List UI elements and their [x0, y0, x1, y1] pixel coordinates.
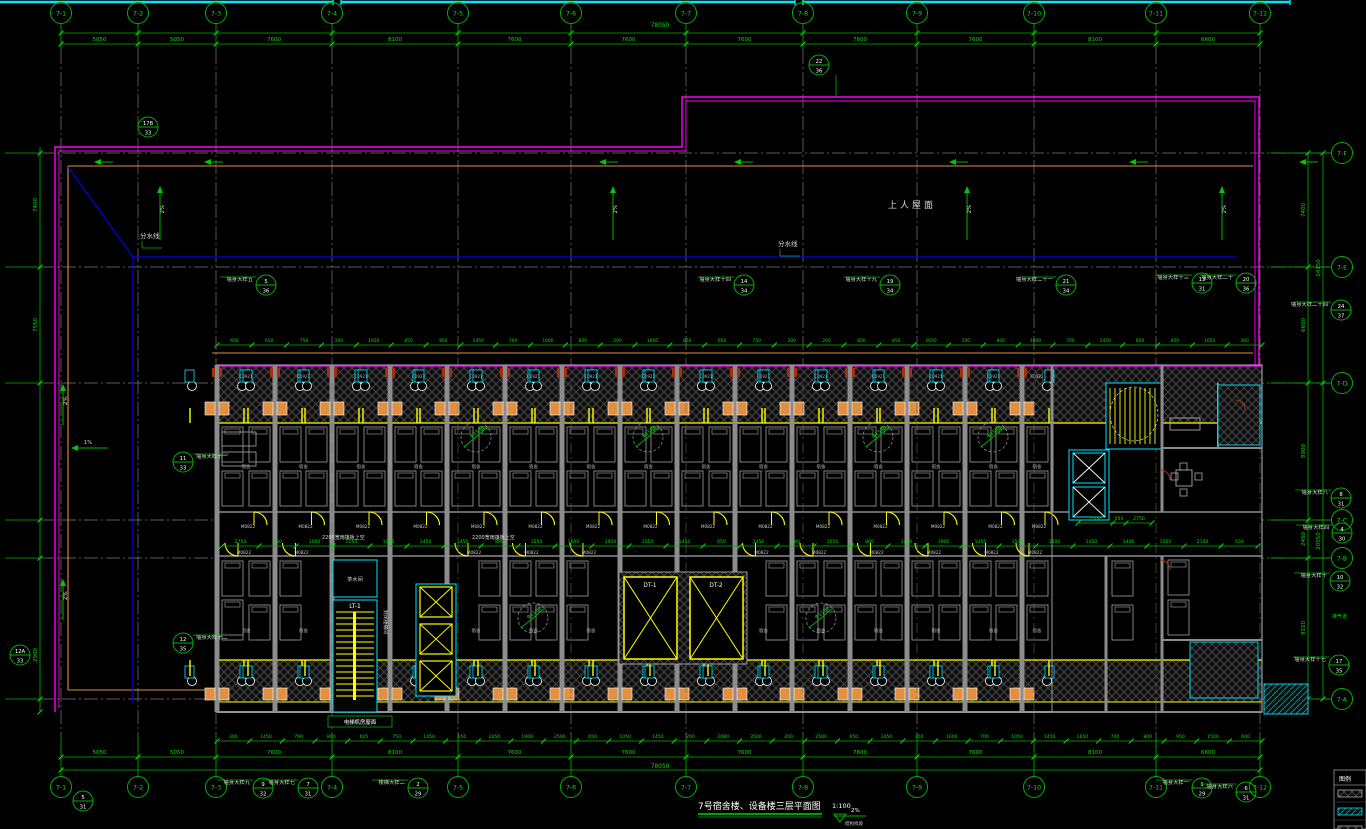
grid-bubble-label: 7-7	[681, 10, 691, 17]
dim-value: 7600	[508, 750, 522, 756]
module-wall	[963, 365, 968, 712]
module-wall	[388, 365, 393, 712]
shaft-box	[205, 402, 215, 415]
room-label: 宿舍	[529, 463, 538, 470]
door-tag: M0822	[758, 524, 773, 529]
room-label: 宿舍	[817, 463, 826, 470]
vent-riser	[730, 368, 733, 377]
shaft-box	[794, 402, 804, 415]
module-wall	[905, 365, 910, 712]
detail-label: 墙身大样二十四	[1291, 300, 1328, 308]
module-wall	[560, 365, 565, 712]
shaft-box	[277, 688, 287, 700]
dim-value: 7600	[969, 37, 983, 43]
grid-bubble-label: 7-A	[1337, 696, 1348, 703]
grid-bubble-label: 7-10	[1027, 784, 1041, 791]
shaft-box	[737, 688, 747, 700]
slope-label: 2%	[160, 205, 166, 214]
door-tag: M0822	[528, 524, 543, 529]
corridor-note: 2200宽雨篷板上空	[472, 534, 515, 541]
shaft-box	[392, 402, 402, 415]
door-tag: M0822	[413, 524, 428, 529]
grid-bubble-label: 7-5	[453, 10, 463, 17]
dim-value: 2500	[815, 734, 827, 740]
vent-riser	[622, 368, 625, 377]
shaft-box	[665, 688, 675, 700]
dim-value: 700	[1066, 338, 1075, 344]
vent-riser	[1024, 368, 1027, 377]
dim-value: 1050	[642, 539, 654, 545]
vent-riser	[507, 368, 510, 377]
shaft-box	[1024, 402, 1034, 415]
detail-number: 7	[306, 782, 309, 788]
detail-sheet: 34	[1063, 289, 1070, 295]
vent-riser	[334, 368, 337, 377]
detail-label: 墙身大样十	[1301, 571, 1328, 579]
door-tag: M0822	[524, 550, 539, 555]
stair-room-label: 封闭楼梯间	[382, 610, 389, 634]
dim-value: 7600	[622, 750, 636, 756]
dim-value: 1000	[309, 539, 321, 545]
basin	[821, 382, 830, 391]
dim-value: 2100	[1089, 516, 1101, 522]
room-label: 宿舍	[759, 463, 768, 470]
roof-label: 上人屋面	[888, 200, 936, 211]
dim-value: 605	[360, 734, 369, 740]
dim-value: 7600	[853, 37, 867, 43]
detail-label: 墙身大样八	[1302, 488, 1329, 496]
drawing-title: 7号宿舍楼、设备楼三层平面图	[698, 800, 821, 812]
detail-label: 墙身大样二十一	[1016, 275, 1054, 283]
slope-percent: 2%	[851, 808, 860, 814]
vent-riser	[909, 368, 912, 377]
shaft-box	[378, 402, 388, 415]
window-tag: C0921	[642, 374, 655, 379]
dim-value: 650	[717, 539, 726, 545]
door-tag: M0822	[298, 524, 313, 529]
dim-value: 1450	[260, 734, 272, 740]
detail-number: 11	[180, 456, 187, 462]
basin	[418, 382, 427, 391]
grid-bubble-label: 7-4	[327, 10, 337, 17]
dim-value: 2750	[1133, 516, 1145, 522]
shaft-box	[277, 402, 287, 415]
dim-value: 2050	[489, 734, 501, 740]
detail-label: 墙身大样七	[269, 778, 296, 786]
grid-bubble-label: 7-E	[1337, 264, 1347, 271]
grid-bubble-label: 7-8	[798, 10, 808, 17]
shaft-box	[838, 688, 848, 700]
room-label: 宿舍	[989, 627, 998, 634]
dim-value: 2080	[717, 734, 729, 740]
grid-bubble-label: 7-9	[912, 10, 922, 17]
detail-number: 22	[816, 59, 823, 65]
basin	[361, 382, 370, 391]
basin	[533, 382, 542, 391]
vent-riser	[787, 368, 790, 377]
detail-sheet: 33	[145, 131, 152, 137]
detail-sheet: 30	[1339, 537, 1346, 543]
detail-sheet: 33	[180, 466, 187, 472]
grid-bubble-label: 7-10	[1027, 10, 1041, 17]
shaft-box	[334, 402, 344, 415]
dim-value: 1650	[647, 338, 658, 344]
door-tag: M0822	[931, 524, 946, 529]
cad-viewport[interactable]: 7-F7-E7-D7-C7-B7-A7400660089002450915014…	[0, 0, 1366, 829]
shaft-box	[378, 688, 388, 700]
dim-overall: 78050	[651, 764, 670, 770]
window-tag: C0921	[930, 374, 943, 379]
dim-value: 14150	[1316, 259, 1322, 277]
detail-number: 2	[416, 782, 419, 788]
shaft-box	[780, 688, 790, 700]
dim-value: 1450	[457, 539, 469, 545]
dim-value: 1000	[542, 338, 553, 344]
dim-value: 850	[1171, 338, 1180, 344]
shaft-box	[564, 402, 574, 415]
slope-symbol	[834, 814, 846, 822]
module-wall	[273, 365, 278, 712]
room-label: 宿舍	[587, 627, 596, 634]
dim-value: 7550	[33, 318, 39, 332]
shaft-box	[205, 688, 215, 700]
dim-value: 650	[588, 734, 597, 740]
detail-label: 墙身大样十二	[196, 633, 228, 641]
detail-label: 墙身大样一	[1163, 778, 1190, 786]
vent-riser	[500, 368, 503, 377]
detail-sheet: 34	[887, 289, 894, 295]
basin	[476, 382, 485, 391]
grid-bubble-label: 7-8	[798, 784, 808, 791]
vent-riser	[794, 368, 797, 377]
dim-value: 2500	[554, 734, 566, 740]
vent-riser	[737, 368, 740, 377]
dim-value: 650	[849, 734, 858, 740]
basin	[648, 382, 657, 391]
room-label: 宿舍	[357, 463, 366, 470]
dim-value: 1950	[605, 539, 617, 545]
dim-value: 600	[1241, 734, 1250, 740]
slope-label: 2%	[1222, 205, 1228, 214]
dim-value: 1000	[383, 539, 395, 545]
basin	[1043, 382, 1052, 391]
module-wall	[848, 365, 853, 712]
detail-label: 墙身大样十一	[196, 452, 228, 460]
detail-sheet: 32	[1337, 585, 1344, 591]
dim-value: 750	[300, 338, 309, 344]
dim-value: 8100	[1088, 37, 1102, 43]
dim-value: 850	[857, 338, 866, 344]
door-tag: M0822	[643, 524, 658, 529]
vent-riser	[277, 368, 280, 377]
divide-label: 分水线	[778, 239, 798, 248]
basin	[246, 382, 255, 391]
shaft-box	[507, 688, 517, 700]
dim-value: 800	[1143, 734, 1152, 740]
vent-riser	[672, 368, 675, 377]
shaft-box	[1010, 688, 1020, 700]
dim-value: 1450	[1044, 734, 1056, 740]
detail-number: 10	[1337, 575, 1344, 581]
grid-bubble-label: 7-6	[566, 10, 576, 17]
room-label: 宿舍	[874, 627, 883, 634]
dim-value: 1500	[1012, 539, 1024, 545]
detail-number: 12	[180, 637, 187, 643]
door-tag: M0822	[869, 550, 884, 555]
window-tag: C0921	[700, 374, 713, 379]
machine-note: 电梯机房屋面	[344, 718, 377, 726]
detail-sheet: 36	[263, 289, 270, 295]
detail-label: 楼梯大样二	[379, 778, 406, 786]
door-tag: M0822	[241, 524, 256, 529]
detail-sheet: 33	[17, 659, 24, 665]
basin	[993, 382, 1002, 391]
door-tag: M0822	[356, 524, 371, 529]
dim-value: 8100	[1088, 750, 1102, 756]
room-label: 宿舍	[472, 463, 481, 470]
dim-value: 850	[892, 338, 901, 344]
dim-value: 6600	[1201, 37, 1215, 43]
grid-bubble-label: 7-5	[453, 784, 463, 791]
dim-value: 650	[458, 734, 467, 740]
shaft-box	[608, 402, 618, 415]
dim-value: 1650	[1077, 734, 1089, 740]
detail-sheet: 31	[1243, 796, 1250, 802]
vent-label: 排气道	[1332, 613, 1347, 620]
detail-label: 墙身大样十九	[845, 275, 877, 283]
dim-value: 1450	[1100, 338, 1111, 344]
door-tag: M0822	[471, 524, 486, 529]
dim-value: 1650	[1204, 338, 1215, 344]
detail-number: 1	[1200, 782, 1203, 788]
slope-label: 2%	[967, 205, 973, 214]
window-tag: C0921	[297, 374, 310, 379]
divide-label: 分水线	[140, 231, 160, 240]
shaft-box	[723, 688, 733, 700]
dim-value: 800	[997, 338, 1006, 344]
grid-bubble-label: 7-9	[912, 784, 922, 791]
dim-value: 700	[509, 338, 518, 344]
dim-value: 9150	[1301, 621, 1307, 635]
dim-value: 650	[683, 338, 692, 344]
dim-value: 700	[980, 734, 989, 740]
vent-riser	[442, 368, 445, 377]
cad-drawing-canvas[interactable]: 7-F7-E7-D7-C7-B7-A7400660089002450915014…	[0, 0, 1366, 829]
shaft-box	[550, 402, 560, 415]
stair-rail	[353, 612, 356, 700]
detail-number: 12A	[15, 649, 26, 655]
dim-value: 300	[229, 734, 238, 740]
shaft-box	[852, 688, 862, 700]
elevator-label: DT-2	[709, 583, 723, 589]
grid-bubble-label: 7-B	[1337, 555, 1347, 562]
dim-value: 1450	[901, 539, 913, 545]
window-tag: C0921	[470, 374, 483, 379]
room-label: 宿舍	[472, 627, 481, 634]
basin	[591, 382, 600, 391]
dim-value: 1550	[1160, 539, 1172, 545]
shaft-box	[794, 688, 804, 700]
grid-bubble-label: 7-11	[1149, 784, 1163, 791]
stair-2	[1106, 383, 1162, 449]
vent-riser	[1017, 368, 1020, 377]
dim-value: 5050	[170, 37, 184, 43]
door-tag: M0822	[582, 550, 597, 555]
detail-number: 21	[1063, 279, 1070, 285]
dim-value: 200	[686, 734, 695, 740]
room-label: 宿舍	[299, 627, 308, 634]
drawing-scale: 1:100	[832, 802, 851, 810]
shaft-box	[550, 688, 560, 700]
detail-label: 墙身大样五	[227, 275, 254, 283]
grid-bubble-label: 7-7	[681, 784, 691, 791]
vent-riser	[564, 368, 567, 377]
grid-bubble-label: 7-F	[1337, 150, 1347, 157]
detail-sheet: 35	[180, 647, 187, 653]
detail-label: 墙身大样十三	[1157, 273, 1189, 281]
dim-value: 1650	[368, 338, 379, 344]
water-divide-line	[68, 167, 133, 257]
dim-value: 1500	[1207, 734, 1219, 740]
generated-drawing: 7-F7-E7-D7-C7-B7-A7400660089002450915014…	[0, 0, 1366, 829]
grid-bubble-label: 7-4	[327, 784, 337, 791]
detail-number: 9	[261, 782, 264, 788]
dim-value: 1050	[827, 539, 839, 545]
dim-value: 2750	[235, 539, 247, 545]
shaft-box	[679, 402, 689, 415]
shaft-box	[895, 402, 905, 415]
elevator-label: DT-1	[643, 583, 657, 589]
basin	[706, 382, 715, 391]
slope-label: 1%	[84, 440, 92, 446]
dim-value: 1450	[753, 539, 765, 545]
dim-value: 7400	[33, 198, 39, 212]
dim-value: 1300	[1049, 539, 1061, 545]
dim-value: 850	[1136, 338, 1145, 344]
basin	[188, 382, 197, 391]
grid-bubble-label: 7-2	[133, 10, 143, 17]
shaft-box	[449, 402, 459, 415]
dim-value: 1050	[1086, 539, 1098, 545]
grid-bubble-label: 7-3	[211, 10, 221, 17]
dim-value: 5050	[93, 750, 107, 756]
dim-value: 550	[1235, 539, 1244, 545]
shaft-box	[219, 688, 229, 700]
window-tag: C0921	[987, 374, 1000, 379]
dim-value: 300	[1240, 338, 1249, 344]
detail-label: 墙身大样六	[1207, 782, 1234, 790]
vent-riser	[385, 368, 388, 377]
dim-value: 7600	[738, 750, 752, 756]
detail-label: 墙身大样二十	[1201, 273, 1233, 281]
door-tag: M0822	[812, 550, 827, 555]
dim-value: 200	[784, 734, 793, 740]
shaft-box	[665, 402, 675, 415]
dim-value: 20550	[1316, 532, 1322, 550]
detail-sheet: 31	[1199, 287, 1206, 293]
dim-value: 7600	[622, 37, 636, 43]
dim-value: 1050	[1011, 734, 1023, 740]
dim-overall: 78050	[651, 23, 670, 29]
detail-label: 墙身大样九	[224, 778, 251, 786]
dim-value: 250	[273, 539, 282, 545]
shaft-box	[219, 402, 229, 415]
room-label: 宿舍	[932, 627, 941, 634]
shaft-box	[895, 688, 905, 700]
shaft-box	[622, 402, 632, 415]
dim-value: 1050	[619, 734, 631, 740]
room-label: 宿舍	[414, 463, 423, 470]
detail-label: 墙身大样四	[1303, 523, 1330, 531]
se-platform	[1264, 684, 1308, 714]
shaft-box	[320, 402, 330, 415]
grid-bubble-label: 7-6	[566, 784, 576, 791]
room-label: 宿舍	[587, 463, 596, 470]
corridor-note: 2200宽雨篷板上空	[322, 534, 365, 541]
shaft-box	[953, 688, 963, 700]
legend-title: 图例	[1339, 775, 1351, 783]
shaft-box	[493, 688, 503, 700]
vent-riser	[392, 368, 395, 377]
detail-number: 17B	[143, 121, 154, 127]
grid-bubble-label: 7-D	[1336, 380, 1347, 387]
vent-riser	[270, 368, 273, 377]
shaft-box	[435, 402, 445, 415]
room-label: 宿舍	[644, 463, 653, 470]
shaft-box	[493, 402, 503, 415]
vent-riser	[557, 368, 560, 377]
detail-sheet: 32	[260, 792, 267, 798]
shaft-box	[967, 402, 977, 415]
module-wall	[215, 365, 220, 712]
dim-value: 1450	[652, 734, 664, 740]
detail-sheet: 36	[1243, 287, 1250, 293]
shaft-box	[909, 688, 919, 700]
door-tag: M0822	[294, 550, 309, 555]
dim-value: 5050	[93, 37, 107, 43]
dim-value: 200	[962, 338, 971, 344]
room-label: 宿舍	[299, 463, 308, 470]
dim-value: 1650	[925, 338, 936, 344]
vent-riser	[327, 368, 330, 377]
dim-value: 1450	[679, 539, 691, 545]
dim-value: 2900	[33, 648, 39, 662]
shaft-box	[507, 402, 517, 415]
slope-note: 结构找坡	[845, 820, 863, 827]
window-tag: C0921	[412, 374, 425, 379]
dim-value: 800	[865, 539, 874, 545]
grid-bubble-label: 7-12	[1253, 10, 1267, 17]
grid-bubble-label: 7-1	[56, 784, 66, 791]
vent-riser	[960, 368, 963, 377]
detail-number: 24	[1338, 304, 1345, 310]
detail-number: 8	[1339, 492, 1343, 498]
door-tag: M0822	[237, 550, 252, 555]
dim-value: 750	[392, 734, 401, 740]
dim-value: 650	[230, 338, 239, 344]
door-tag: M0822	[927, 550, 942, 555]
dim-value: 650	[265, 338, 274, 344]
detail-label: 墙身大样十四	[699, 275, 731, 283]
shaft-box	[263, 688, 273, 700]
window-tag: C0921	[527, 374, 540, 379]
vent-riser	[967, 368, 970, 377]
door-tag: M0822	[754, 550, 769, 555]
shaft-box	[838, 402, 848, 415]
vent-riser	[219, 368, 222, 377]
dim-value: 6600	[1301, 318, 1307, 332]
dim-value: 2100	[1197, 539, 1209, 545]
